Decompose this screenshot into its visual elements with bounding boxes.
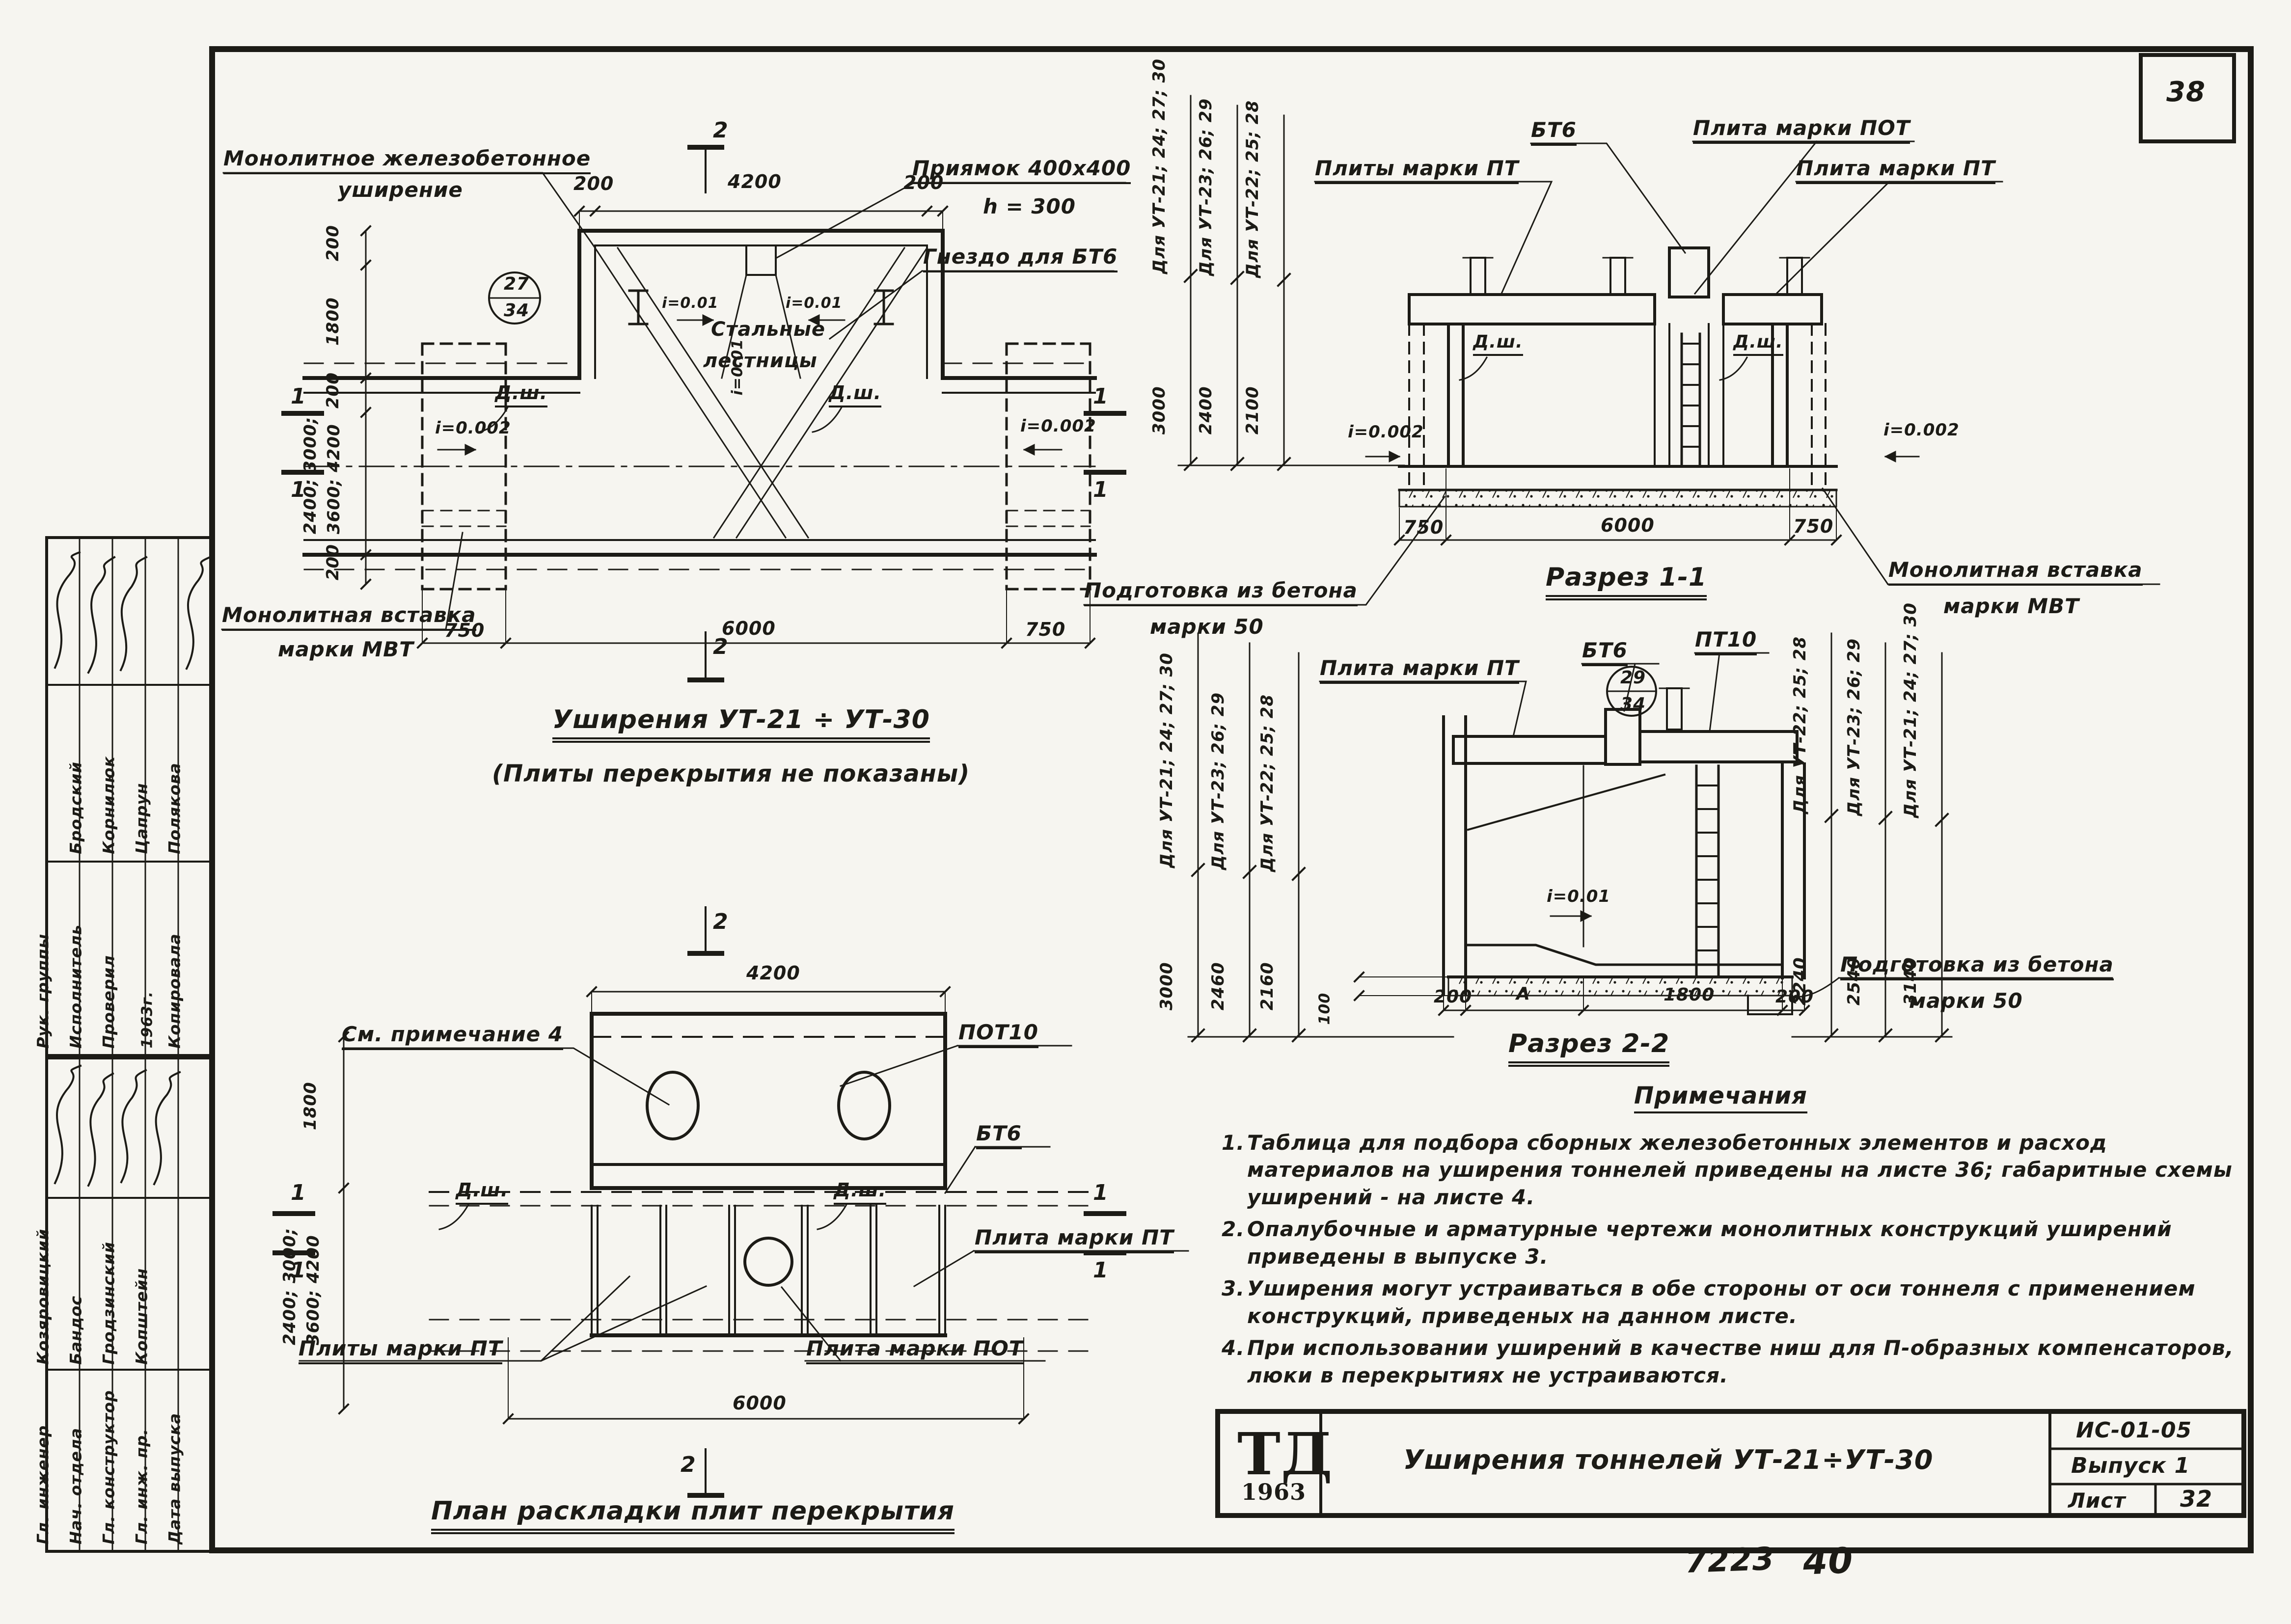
note-text: Опалубочные и арматурные чертежи монолит…	[1247, 1216, 2243, 1270]
notes-title: Примечания	[1634, 1082, 1807, 1113]
group-label-ut21-s2-right: Для УТ-21; 24; 27; 30	[1901, 602, 1920, 818]
dim-1800-slab: 1800	[300, 1082, 320, 1130]
group-label-ut23-s2-right: Для УТ-23; 26; 29	[1844, 638, 1864, 816]
slope-label-i0002-right: i=0.002	[1020, 416, 1096, 436]
group-label-ut22-s1: Для УТ-22; 25; 28	[1243, 100, 1262, 278]
dim-6000-s1: 6000	[1601, 514, 1655, 537]
label-slabs-pt: Плиты марки ПТ	[299, 1336, 502, 1364]
height-2160-s2: 2160	[1257, 962, 1277, 1010]
group-label-ut22-s2-left: Для УТ-22; 25; 28	[1257, 694, 1277, 872]
sidebar-role-group-leader: Рук. группы	[34, 934, 53, 1049]
callout-insert-line2: марки МВТ	[278, 637, 414, 662]
sidebar-role-executor: Исполнитель	[67, 924, 85, 1049]
callout-monolithic-widening-line2: уширение	[338, 178, 463, 202]
dim-left-200-1: 200	[323, 225, 343, 261]
joint-label-s1-left: Д.ш.	[1473, 332, 1523, 356]
drawing-sheet: 38 7223 40 Монолитное железобетонное уши…	[0, 0, 2291, 1624]
sidebar-role-chief-project-engineer: Гл. инж. пр.	[133, 1429, 151, 1544]
sidebar-name-kozyarovitsky: Козяровицкий	[34, 1229, 53, 1365]
section-mark-1-slab-left-a: 1	[291, 1180, 306, 1206]
dim-1800-s2: 1800	[1664, 985, 1715, 1005]
label-bt6-s1: БТ6	[1531, 118, 1577, 146]
callout-prep-s2-line2: марки 50	[1909, 989, 2023, 1013]
section-mark-1-slab-right-b: 1	[1093, 1258, 1109, 1283]
dim-left-variable-2: 3600; 4200	[324, 424, 344, 534]
signature	[55, 552, 211, 1186]
slope-label-i001-vert: i=0.01	[729, 339, 746, 395]
label-steel-stairs-line1: Стальные	[711, 318, 825, 341]
sidebar-role-issue-date: Дата выпуска	[165, 1413, 184, 1544]
note-text: Таблица для подбора сборных железобетонн…	[1247, 1129, 2243, 1211]
fig4-title: Разрез 2-2	[1508, 1029, 1669, 1067]
note-text: При использовании уширений в качестве ни…	[1247, 1334, 2243, 1389]
section-mark-2-bottom: 2	[713, 634, 729, 660]
ref-circle-top: 27	[504, 274, 529, 295]
logo-td: ТД	[1237, 1420, 1333, 1488]
note-item-3: 3. Уширения могут устраиваться в обе сто…	[1222, 1275, 2243, 1329]
callout-prep-s1-line1: Подготовка из бетона	[1084, 578, 1358, 606]
sidebar-name-bandos: Бандос	[67, 1296, 85, 1365]
callout-insert-line1: Монолитная вставка	[222, 603, 476, 631]
label-pt10-s2: ПТ10	[1695, 627, 1757, 655]
note-item-4: 4. При использовании уширений в качестве…	[1222, 1334, 2243, 1389]
label-slab-pt: Плита марки ПТ	[975, 1225, 1174, 1253]
sidebar-name-brodsky: Бродский	[67, 761, 85, 854]
dim-750-s1-left: 750	[1403, 516, 1444, 539]
sidebar-role-chief-designer: Гл. конструктор	[100, 1390, 118, 1544]
dim-200-s2-b: 200	[1775, 987, 1814, 1007]
dim-750-s1-right: 750	[1793, 515, 1833, 538]
label-pt-s2: Плита марки ПТ	[1320, 656, 1519, 684]
group-label-ut21-s2-left: Для УТ-21; 24; 27; 30	[1157, 652, 1176, 868]
dim-200-s2-a: 200	[1434, 987, 1472, 1007]
label-steel-stairs-line2: лестницы	[703, 350, 818, 373]
section-mark-1-slab-left-b: 1	[291, 1258, 306, 1283]
section-mark-1-left-a: 1	[291, 384, 306, 409]
label-bt6-slab: БТ6	[976, 1121, 1022, 1149]
dim-left-200-2: 200	[323, 372, 343, 408]
sidebar-year: 1963г.	[139, 991, 156, 1049]
dim-A-s2: А	[1516, 984, 1530, 1004]
height-3000-s1: 3000	[1149, 386, 1169, 434]
label-bt6-s2: БТ6	[1582, 638, 1628, 666]
dim-bottom-6000: 6000	[722, 618, 776, 640]
height-2100-s1: 2100	[1243, 386, 1262, 434]
callout-insert-s1-line2: марки МВТ	[1943, 594, 2079, 619]
sidebar-role-checked: Проверил	[100, 955, 118, 1048]
sidebar-role-chief-engineer: Гл. инженер	[34, 1425, 53, 1544]
ref-circle-top-s2: 29	[1620, 668, 1646, 688]
section-mark-2-top: 2	[713, 118, 729, 143]
section-mark-1-left-b: 1	[291, 477, 306, 503]
callout-pit-line2: h = 300	[983, 194, 1076, 219]
sidebar-name-polyakova: Полякова	[165, 762, 184, 854]
title-block-sheet-label: Лист	[2068, 1489, 2126, 1513]
dim-top-200-right: 200	[903, 172, 944, 194]
slope-label-i001-left: i=0.01	[662, 295, 718, 312]
note-item-2: 2. Опалубочные и арматурные чертежи моно…	[1222, 1216, 2243, 1270]
dim-variable-slab-2: 3600; 4200	[303, 1235, 323, 1345]
sidebar-name-grodzinsky: Гродзинский	[100, 1242, 118, 1365]
title-block-sheet-number: 32	[2180, 1486, 2212, 1512]
note-number: 3.	[1222, 1275, 1247, 1329]
group-label-ut23-s2-left: Для УТ-23; 26; 29	[1208, 692, 1228, 870]
ref-circle-bottom: 34	[504, 300, 529, 321]
joint-label-slab-right: Д.ш.	[834, 1179, 886, 1205]
group-label-ut21-s1: Для УТ-21; 24; 27; 30	[1149, 58, 1169, 274]
label-pot-s1: Плита марки ПОТ	[1693, 116, 1910, 144]
dim-4200-slab: 4200	[746, 962, 800, 984]
callout-insert-s1-line1: Монолитная вставка	[1888, 558, 2143, 586]
height-2400-s1: 2400	[1196, 386, 1216, 434]
joint-label-right: Д.ш.	[829, 382, 881, 407]
notes-list: 1. Таблица для подбора сборных железобет…	[1222, 1129, 2243, 1394]
label-slab-pot: Плита марки ПОТ	[806, 1336, 1023, 1364]
fig1-linework	[222, 147, 1125, 680]
callout-pit-line1: Приямок 400х400	[912, 156, 1131, 184]
note-number: 4.	[1222, 1334, 1247, 1389]
note-item-1: 1. Таблица для подбора сборных железобет…	[1222, 1129, 2243, 1211]
height-3000-s2: 3000	[1157, 962, 1176, 1010]
dim-top-200-left: 200	[573, 173, 614, 195]
joint-label-slab-left: Д.ш.	[456, 1179, 508, 1205]
section-mark-2-slab-top: 2	[713, 909, 729, 935]
section-mark-2-slab-bottom: 2	[681, 1452, 696, 1478]
dim-top-4200: 4200	[728, 171, 782, 193]
sheet-corner-number: 38	[2166, 76, 2206, 108]
sidebar-role-dept-head: Нач. отдела	[67, 1428, 85, 1544]
sidebar-name-kopshtein: Копштейн	[133, 1268, 151, 1365]
title-block-issue: Выпуск 1	[2071, 1453, 2190, 1479]
dim-left-1800: 1800	[323, 297, 343, 346]
label-pot10: ПОТ10	[958, 1020, 1038, 1048]
callout-prep-s1-line2: марки 50	[1150, 615, 1264, 639]
slope-i0002-s1-right: i=0.002	[1883, 420, 1960, 440]
group-label-ut22-s2-right: Для УТ-22; 25; 28	[1790, 636, 1810, 814]
callout-monolithic-widening-line1: Монолитное железобетонное	[223, 146, 591, 174]
dim-variable-slab-1: 2400; 3000;	[280, 1228, 300, 1345]
fig2-linework	[275, 907, 1188, 1495]
label-slabs-pt-s1: Плиты марки ПТ	[1315, 156, 1519, 184]
title-block-code: ИС-01-05	[2076, 1418, 2192, 1443]
sidebar-name-kornilyuk: Корнилюк	[100, 756, 118, 854]
slope-label-i001-right: i=0.01	[786, 295, 842, 312]
slope-i0002-s1-left: i=0.002	[1348, 422, 1424, 442]
dim-100-s2: 100	[1316, 993, 1334, 1025]
sidebar-role-copied: Копировала	[165, 933, 184, 1048]
title-block-title: Уширения тоннелей УТ-21÷УТ-30	[1403, 1444, 1933, 1476]
fig1-title: Уширения УТ-21 ÷ УТ-30	[552, 705, 930, 743]
stamp-number-1: 7223	[1685, 1541, 1775, 1581]
label-pt-s1: Плита марки ПТ	[1796, 156, 1995, 184]
slope-i001-s2: i=0.01	[1547, 887, 1610, 906]
callout-prep-s2-line1: Подготовка из бетона	[1840, 952, 2114, 980]
height-2460-s2: 2460	[1208, 962, 1228, 1010]
note-number: 2.	[1222, 1216, 1247, 1270]
sidebar-name-tsaprun: Цапрун	[133, 783, 151, 854]
section-mark-1-slab-right-a: 1	[1093, 1180, 1109, 1206]
stamp-number-2: 40	[1802, 1540, 1854, 1583]
group-label-ut23-s1: Для УТ-23; 26; 29	[1196, 98, 1216, 276]
logo-year: 1963	[1241, 1479, 1306, 1505]
callout-socket-bt6: Гнездо для БТ6	[923, 244, 1118, 272]
dim-bottom-750-right: 750	[1025, 619, 1065, 641]
slope-label-i0002-left: i=0.002	[435, 418, 511, 438]
note-text: Уширения могут устраиваться в обе сторон…	[1247, 1275, 2243, 1329]
section-mark-1-right-b: 1	[1093, 477, 1109, 503]
section-mark-1-right-a: 1	[1093, 384, 1109, 409]
note-number: 1.	[1222, 1129, 1247, 1211]
ref-circle-bottom-s2: 34	[1620, 694, 1646, 715]
fig2-title: План раскладки плит перекрытия	[431, 1496, 955, 1534]
callout-see-note-4: См. примечание 4	[342, 1022, 563, 1050]
dim-left-variable-1: 2400; 3000;	[300, 417, 320, 534]
joint-label-left: Д.ш.	[495, 382, 547, 407]
joint-label-s1-right: Д.ш.	[1733, 332, 1783, 356]
dim-6000-slab: 6000	[733, 1392, 787, 1414]
fig1-subtitle: (Плиты перекрытия не показаны)	[492, 760, 970, 788]
dim-left-200-3: 200	[323, 544, 343, 580]
fig3-title: Разрез 1-1	[1546, 563, 1707, 600]
